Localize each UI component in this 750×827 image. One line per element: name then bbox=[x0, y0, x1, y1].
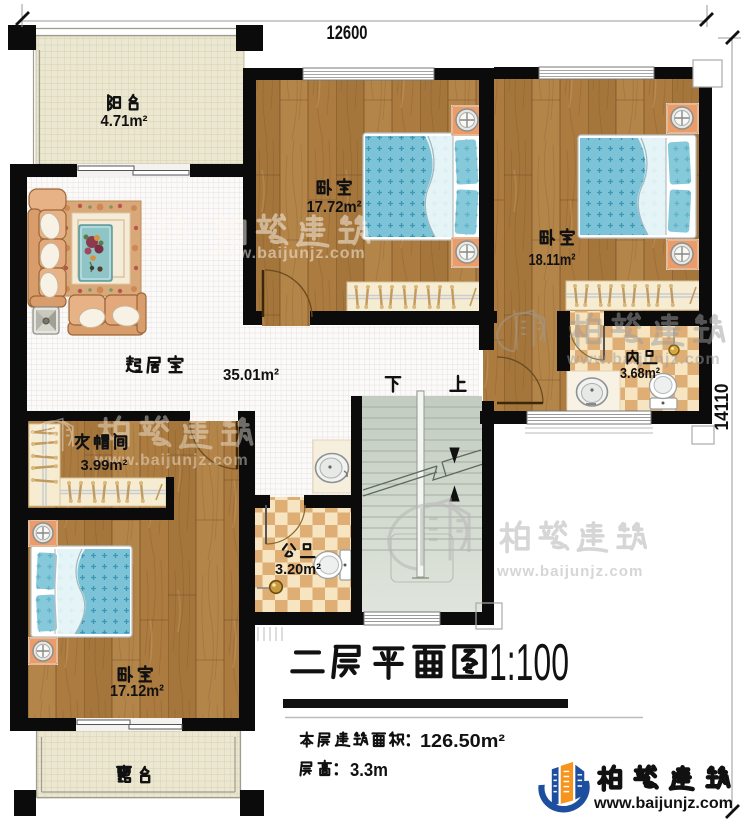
svg-text:3.20m²: 3.20m² bbox=[275, 561, 321, 578]
svg-text:35.01m²: 35.01m² bbox=[223, 367, 279, 384]
svg-text:14110: 14110 bbox=[712, 384, 733, 431]
svg-text:17.72m²: 17.72m² bbox=[307, 199, 362, 216]
svg-text:：: ： bbox=[404, 730, 422, 750]
svg-text:：: ： bbox=[332, 759, 350, 779]
svg-text:18.11m²: 18.11m² bbox=[529, 252, 576, 269]
svg-text:www.baijunjz.com: www.baijunjz.com bbox=[593, 795, 733, 812]
svg-text:12600: 12600 bbox=[327, 23, 368, 44]
svg-text:1:100: 1:100 bbox=[489, 634, 569, 692]
svg-text:www.baijunjz.com: www.baijunjz.com bbox=[496, 563, 643, 580]
svg-text:3.99m²: 3.99m² bbox=[81, 457, 128, 474]
svg-text:3.68m²: 3.68m² bbox=[620, 365, 660, 382]
svg-text:www.baijunjz.com: www.baijunjz.com bbox=[211, 245, 366, 262]
svg-text:17.12m²: 17.12m² bbox=[110, 683, 164, 700]
svg-text:126.50m²: 126.50m² bbox=[420, 731, 505, 751]
svg-text:3.3m: 3.3m bbox=[350, 760, 388, 780]
svg-text:4.71m²: 4.71m² bbox=[101, 113, 148, 130]
